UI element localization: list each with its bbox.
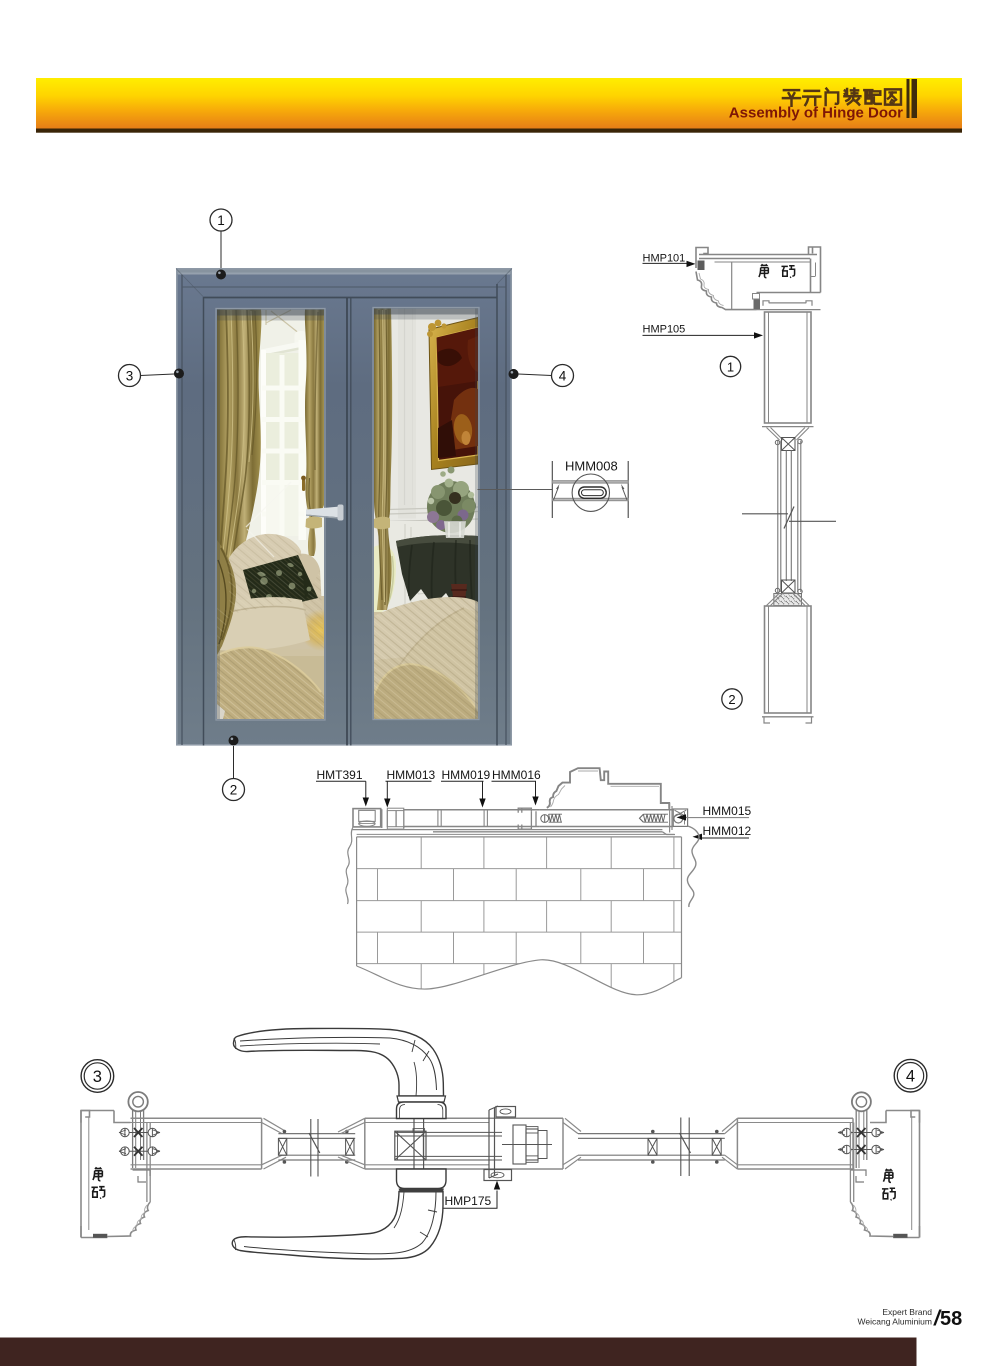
svg-text:Weicang Aluminium: Weicang Aluminium [858, 1317, 933, 1327]
svg-text:HMP105: HMP105 [643, 324, 686, 336]
svg-text:58: 58 [940, 1308, 962, 1330]
svg-text:4: 4 [906, 1068, 915, 1086]
svg-text:3: 3 [93, 1068, 102, 1086]
svg-text:2: 2 [230, 783, 238, 798]
svg-text:HMM012: HMM012 [703, 824, 752, 838]
svg-text:HMP175: HMP175 [445, 1194, 492, 1208]
svg-text:Expert Brand: Expert Brand [882, 1307, 932, 1317]
svg-text:HMM019: HMM019 [442, 768, 491, 782]
svg-text:1: 1 [217, 213, 225, 228]
svg-text:HMM013: HMM013 [387, 768, 436, 782]
svg-text:HMM016: HMM016 [492, 768, 541, 782]
svg-text:2: 2 [728, 692, 735, 707]
svg-text:4: 4 [559, 369, 567, 384]
svg-text:Assembly of Hinge Door: Assembly of Hinge Door [729, 105, 903, 122]
svg-text:HMT391: HMT391 [317, 768, 363, 782]
svg-text:HMM015: HMM015 [703, 804, 752, 818]
svg-text:1: 1 [727, 359, 734, 374]
svg-text:HMM008: HMM008 [565, 459, 618, 474]
svg-text:3: 3 [126, 369, 134, 384]
svg-text:HMP101: HMP101 [643, 253, 686, 265]
